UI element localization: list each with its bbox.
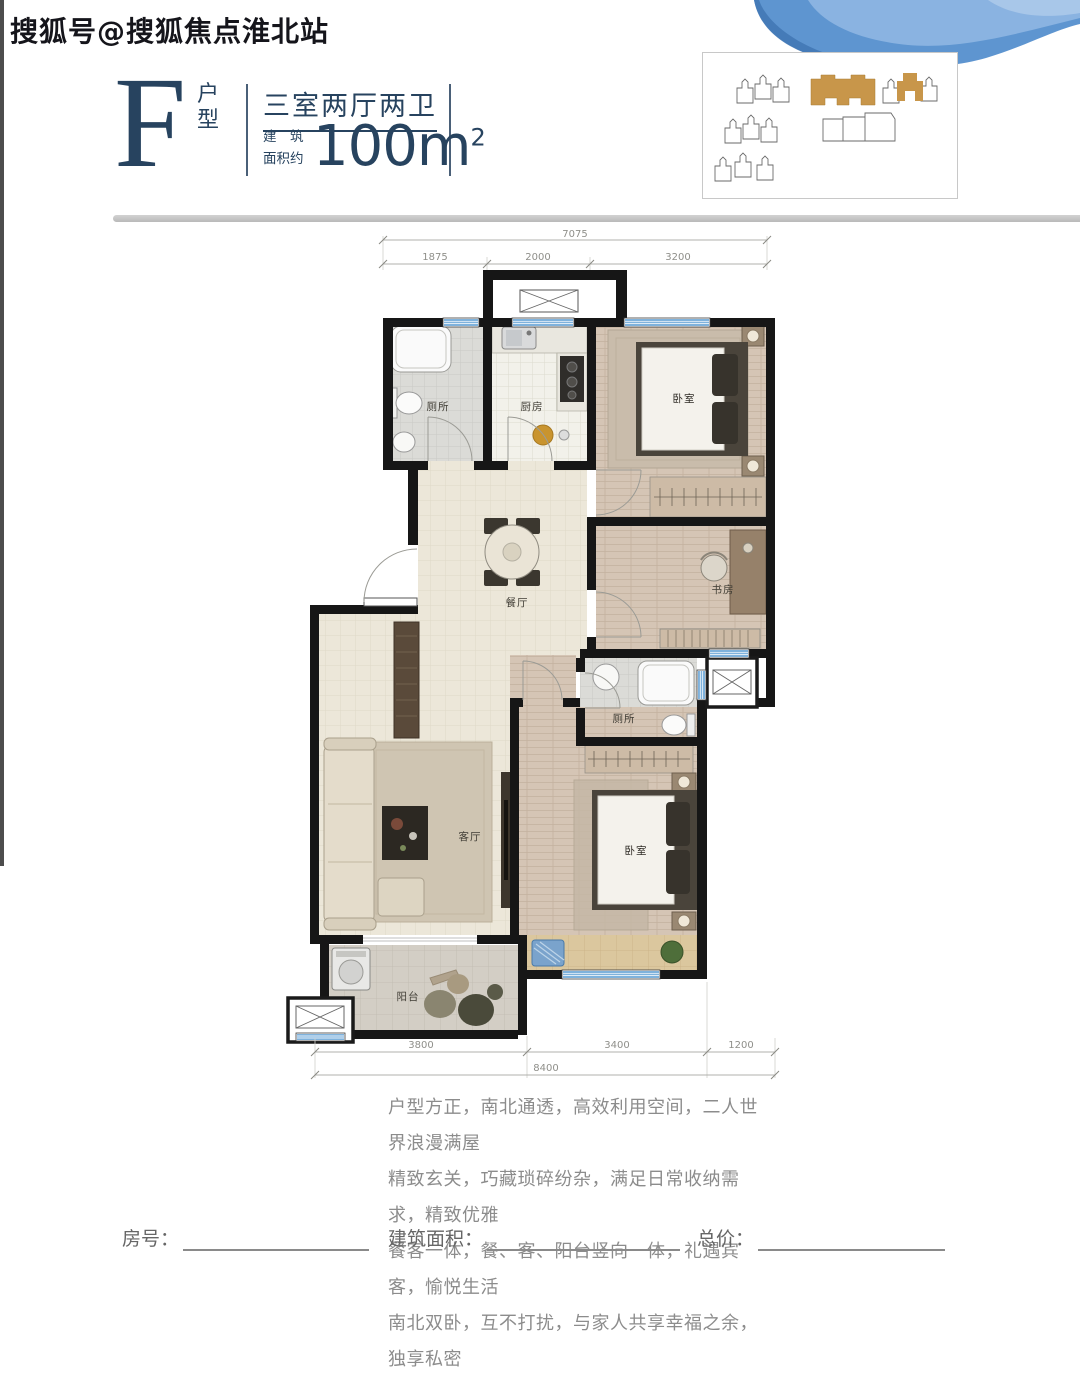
field-room-number-label: 房号： [122, 1228, 179, 1250]
room-label-kitchen: 厨房 [521, 400, 544, 413]
area-number: 100m [313, 114, 470, 179]
dim-bottom-seg2: 3400 [604, 1040, 629, 1051]
bookshelf-icon [660, 629, 760, 648]
site-plan-map [703, 53, 957, 198]
room-label-bedroom1: 卧室 [673, 392, 696, 405]
room-label-bath1: 厕所 [427, 401, 450, 413]
dim-top-seg3: 3200 [665, 252, 690, 263]
area-superscript: 2 [470, 123, 484, 151]
coffee-table-icon [382, 806, 428, 860]
sliding-door-track [363, 938, 477, 941]
field-built-area-label: 建筑面积： [388, 1228, 483, 1250]
dim-bottom-total: 8400 [533, 1063, 558, 1074]
field-total-price-label: 总价： [697, 1228, 754, 1250]
room-label-bedroom2: 卧室 [625, 844, 648, 857]
room-label-bath2: 厕所 [613, 713, 636, 725]
footer-fields: 房号： 建筑面积： 总价： [0, 1224, 1080, 1254]
site-plan-box [702, 52, 958, 199]
window-icon [624, 318, 710, 327]
field-room-number: 房号： [122, 1224, 369, 1251]
window-icon [443, 318, 479, 327]
dining-furniture [484, 518, 540, 586]
dim-bottom-seg3: 1200 [728, 1040, 753, 1051]
window-icon [562, 970, 660, 979]
room-label-balcony: 阳台 [397, 990, 420, 1003]
unit-type-label: 户型 [197, 82, 221, 135]
description-line: 南北双卧，互不打扰，与家人共享幸福之余，独享私密 [388, 1306, 758, 1378]
window-icon [697, 670, 706, 700]
area-prefix: 建 筑 面积约 [263, 127, 309, 170]
floor-plan: 厕所 厨房 卧室 餐厅 书房 客厅 厕所 卧室 阳台 7075 1875 200… [280, 230, 780, 1088]
entry-door-icon [364, 598, 417, 606]
field-total-price: 总价： [697, 1224, 945, 1251]
header-divider-left [246, 84, 248, 176]
field-built-area: 建筑面积： [388, 1224, 680, 1251]
area-value: 100m2 [313, 114, 485, 179]
separator-bar [113, 215, 1080, 222]
area-prefix-line2: 面积约 [263, 149, 309, 171]
plant-icon [661, 941, 683, 963]
room-label-study: 书房 [712, 583, 735, 596]
highlighted-buildings [811, 73, 923, 105]
window-icon [296, 1033, 345, 1041]
dim-top-seg2: 2000 [525, 252, 550, 263]
window-icon [709, 649, 749, 658]
room-label-living: 客厅 [459, 830, 482, 843]
bathtub-icon [638, 661, 694, 705]
dim-top-total: 7075 [562, 230, 587, 240]
room-label-dining: 餐厅 [506, 596, 529, 609]
header-divider-right [449, 84, 451, 176]
field-built-area-blank [487, 1229, 680, 1251]
description-line: 户型方正，南北通透，高效利用空间，二人世界浪漫满屋 [388, 1090, 758, 1162]
window-icon [512, 318, 574, 327]
page-edge-line [0, 0, 4, 866]
chair-icon [701, 555, 727, 581]
field-room-number-blank [183, 1229, 369, 1251]
dim-bottom-seg1: 3800 [408, 1040, 433, 1051]
shoe-cabinet-icon [394, 622, 419, 738]
toilet-icon [396, 392, 422, 414]
field-total-price-blank [758, 1229, 945, 1251]
unit-letter: F [114, 58, 186, 188]
sofa-icon [324, 746, 374, 922]
watermark-text: 搜狐号@搜狐焦点淮北站 [10, 10, 329, 50]
area-prefix-line1: 建 筑 [263, 127, 309, 149]
dim-top-seg1: 1875 [422, 252, 447, 263]
